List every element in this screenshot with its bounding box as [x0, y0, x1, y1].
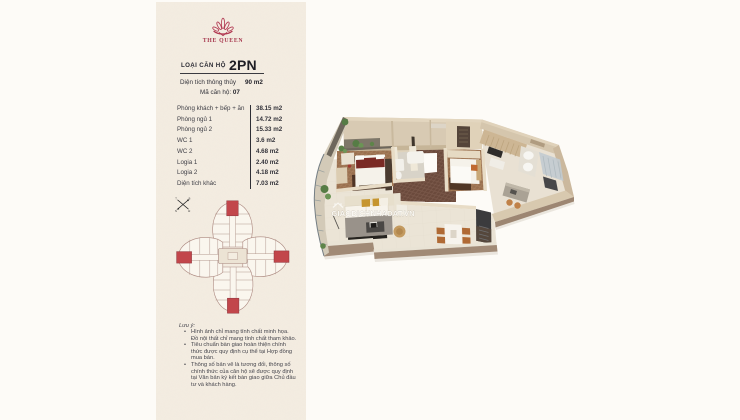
svg-text:GIAODICHNHADAT.VN: GIAODICHNHADAT.VN — [332, 209, 415, 218]
